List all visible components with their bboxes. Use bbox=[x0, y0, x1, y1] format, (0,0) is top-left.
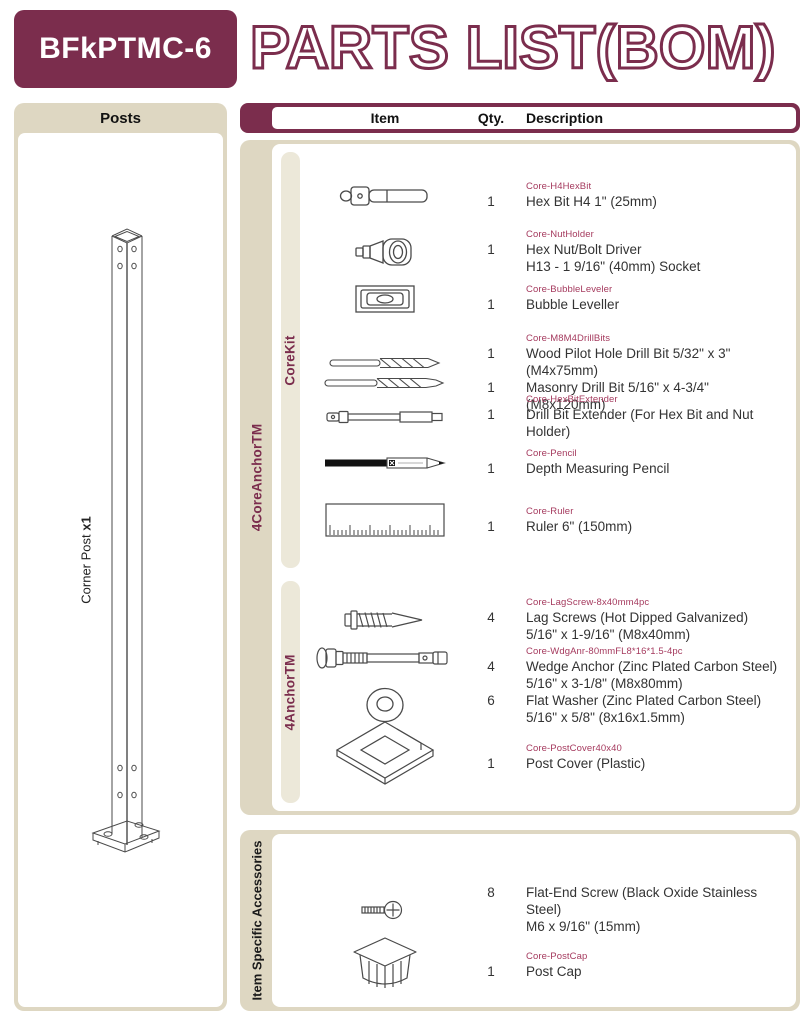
part-number: Core-WdgAnr-80mmFL8*16*1.5-4pc bbox=[526, 646, 786, 658]
parts-row: Core-HexBitExtender 1Drill Bit Extender … bbox=[310, 394, 786, 440]
description-line: Hex Bit H4 1" (25mm) bbox=[526, 193, 786, 210]
section-label-gutter: Item Specific Accessories bbox=[240, 830, 274, 1011]
column-header-item: Item bbox=[310, 110, 460, 126]
corner-post-name: Corner Post bbox=[79, 534, 94, 603]
item-content: Core-LagScrew-8x40mm4pc 4Lag Screws (Hot… bbox=[460, 597, 786, 643]
part-number: Core-PostCap bbox=[526, 951, 786, 963]
product-code-badge: BFkPTMC-6 bbox=[14, 10, 237, 88]
description-line: Wedge Anchor (Zinc Plated Carbon Steel) bbox=[526, 658, 786, 675]
qty-value: 1 bbox=[460, 193, 522, 210]
parts-list-page: BFkPTMC-6 PARTS LIST (BOM) Posts bbox=[0, 0, 812, 1024]
description-line: H13 - 1 9/16" (40mm) Socket bbox=[526, 258, 786, 275]
masonry-drill-bit-icon bbox=[324, 376, 446, 390]
item-entries: 1Hex Bit H4 1" (25mm) bbox=[460, 193, 786, 210]
qty-value: 8 bbox=[460, 884, 522, 935]
part-number: Core-H4HexBit bbox=[526, 181, 786, 193]
subsection-label-corekit: CoreKit bbox=[283, 335, 298, 385]
item-entries: 1Ruler 6" (150mm) bbox=[460, 518, 786, 535]
description-line: 5/16" x 3-1/8" (M8x80mm) bbox=[526, 675, 786, 692]
posts-panel-body: Corner Post x1 bbox=[18, 133, 223, 1007]
wedge-anchor-icon bbox=[316, 646, 454, 670]
item-content: Core-Pencil 1Depth Measuring Pencil bbox=[460, 448, 786, 477]
description-line: Depth Measuring Pencil bbox=[526, 460, 786, 477]
description-line: Lag Screws (Hot Dipped Galvanized) bbox=[526, 609, 786, 626]
qty-value: 1 bbox=[460, 296, 522, 313]
pencil-icon bbox=[324, 456, 446, 470]
qty-value: 1 bbox=[460, 460, 522, 477]
ruler-icon bbox=[325, 503, 445, 537]
item-illustration bbox=[310, 184, 460, 208]
description-line: Flat Washer (Zinc Plated Carbon Steel) bbox=[526, 692, 786, 709]
posts-panel-title: Posts bbox=[14, 103, 227, 133]
qty-value: 1 bbox=[460, 518, 522, 535]
item-illustration bbox=[310, 720, 460, 794]
item-content: Core-PostCap 1Post Cap bbox=[460, 951, 786, 980]
qty-value: 1 bbox=[460, 963, 522, 980]
part-number: Core-Ruler bbox=[526, 506, 786, 518]
posts-panel: Posts bbox=[14, 103, 227, 1011]
section-content-4coreanchor: CoreKit 4AnchorTM Core-H4HexBit 1Hex Bit… bbox=[272, 144, 796, 811]
item-illustration bbox=[310, 456, 460, 470]
item-illustration bbox=[310, 936, 460, 994]
item-entries: 4Lag Screws (Hot Dipped Galvanized)5/16"… bbox=[460, 609, 786, 643]
part-number: Core-LagScrew-8x40mm4pc bbox=[526, 597, 786, 609]
item-entries: 1Drill Bit Extender (For Hex Bit and Nut… bbox=[460, 406, 786, 440]
lag-screw-icon bbox=[344, 607, 426, 633]
item-content: Core-H4HexBit 1Hex Bit H4 1" (25mm) bbox=[460, 181, 786, 210]
page-title-main: PARTS LIST bbox=[250, 18, 596, 78]
parts-row: Core-LagScrew-8x40mm4pc 4Lag Screws (Hot… bbox=[310, 597, 786, 643]
item-content: Core-HexBitExtender 1Drill Bit Extender … bbox=[460, 394, 786, 440]
subsection-strip-corekit: CoreKit bbox=[281, 152, 300, 568]
item-entries: 1Depth Measuring Pencil bbox=[460, 460, 786, 477]
part-number: Core-Pencil bbox=[526, 448, 786, 460]
item-illustration bbox=[310, 285, 460, 313]
parts-row: Core-PostCover40x40 1Post Cover (Plastic… bbox=[310, 720, 786, 794]
drill-bit-extender-icon bbox=[326, 409, 444, 425]
description-line: Flat-End Screw (Black Oxide Stainless St… bbox=[526, 884, 786, 918]
qty-value: 1 bbox=[460, 345, 522, 379]
qty-value: 1 bbox=[460, 755, 522, 772]
corner-post-drawing bbox=[18, 133, 223, 1007]
parts-row: 8Flat-End Screw (Black Oxide Stainless S… bbox=[310, 884, 786, 935]
corner-post-qty: x1 bbox=[79, 516, 94, 530]
parts-row: Core-Ruler 1Ruler 6" (150mm) bbox=[310, 503, 786, 537]
product-code: BFkPTMC-6 bbox=[39, 32, 212, 66]
item-entries: 1Post Cover (Plastic) bbox=[460, 755, 786, 772]
section-label-4coreanchor: 4CoreAnchorTM bbox=[250, 424, 265, 532]
parts-row: Core-WdgAnr-80mmFL8*16*1.5-4pc 4Wedge An… bbox=[310, 646, 786, 726]
page-title-suffix: (BOM) bbox=[596, 18, 776, 78]
section-label-accessories: Item Specific Accessories bbox=[250, 841, 265, 1001]
item-entries: 4Wedge Anchor (Zinc Plated Carbon Steel)… bbox=[460, 658, 786, 726]
item-illustration bbox=[310, 237, 460, 267]
item-illustration bbox=[310, 899, 460, 921]
section-label-gutter: 4CoreAnchorTM bbox=[240, 140, 274, 815]
qty-value: 4 bbox=[460, 609, 522, 643]
description-line: Ruler 6" (150mm) bbox=[526, 518, 786, 535]
corner-post-label: Corner Post x1 bbox=[79, 516, 94, 603]
wood-drill-bit-icon bbox=[329, 356, 441, 370]
part-number: Core-NutHolder bbox=[526, 229, 786, 241]
nut-driver-icon bbox=[355, 237, 415, 267]
subsection-label-4anchor: 4AnchorTM bbox=[283, 654, 298, 730]
item-entries: 1Post Cap bbox=[460, 963, 786, 980]
parts-row: Core-Pencil 1Depth Measuring Pencil bbox=[310, 448, 786, 477]
item-illustration bbox=[310, 356, 460, 390]
column-header-qty: Qty. bbox=[460, 110, 522, 126]
description-line: Drill Bit Extender (For Hex Bit and Nut … bbox=[526, 406, 786, 440]
item-illustration bbox=[310, 409, 460, 425]
description-line: Wood Pilot Hole Drill Bit 5/32" x 3" (M4… bbox=[526, 345, 786, 379]
page-title: PARTS LIST (BOM) bbox=[250, 8, 802, 88]
table-header-bar: Item Qty. Description bbox=[240, 103, 800, 133]
parts-row: Core-H4HexBit 1Hex Bit H4 1" (25mm) bbox=[310, 181, 786, 210]
description-line: Hex Nut/Bolt Driver bbox=[526, 241, 786, 258]
item-content: Core-NutHolder 1Hex Nut/Bolt DriverH13 -… bbox=[460, 229, 786, 275]
item-entries: 8Flat-End Screw (Black Oxide Stainless S… bbox=[460, 884, 786, 935]
table-header-inner: Item Qty. Description bbox=[272, 107, 796, 129]
item-content: Core-WdgAnr-80mmFL8*16*1.5-4pc 4Wedge An… bbox=[460, 646, 786, 726]
part-number: Core-M8M4DrillBits bbox=[526, 333, 786, 345]
item-content: Core-BubbleLeveler 1Bubble Leveller bbox=[460, 284, 786, 313]
qty-value: 1 bbox=[460, 241, 522, 275]
parts-row: Core-BubbleLeveler 1Bubble Leveller bbox=[310, 284, 786, 313]
parts-row: Core-PostCap 1Post Cap bbox=[310, 936, 786, 994]
part-number: Core-PostCover40x40 bbox=[526, 743, 786, 755]
item-content: Core-PostCover40x40 1Post Cover (Plastic… bbox=[460, 743, 786, 772]
item-entries: 1Hex Nut/Bolt DriverH13 - 1 9/16" (40mm)… bbox=[460, 241, 786, 275]
item-illustration bbox=[310, 607, 460, 633]
description-line: M6 x 9/16" (15mm) bbox=[526, 918, 786, 935]
column-header-description: Description bbox=[522, 110, 603, 126]
item-content: 8Flat-End Screw (Black Oxide Stainless S… bbox=[460, 884, 786, 935]
section-content-accessories: 8Flat-End Screw (Black Oxide Stainless S… bbox=[272, 834, 796, 1007]
description-line: Post Cap bbox=[526, 963, 786, 980]
item-illustration bbox=[310, 503, 460, 537]
description-line: Post Cover (Plastic) bbox=[526, 755, 786, 772]
flat-end-screw-icon bbox=[360, 899, 410, 921]
bubble-level-icon bbox=[355, 285, 415, 313]
post-cap-icon bbox=[352, 936, 418, 994]
parts-row: Core-NutHolder 1Hex Nut/Bolt DriverH13 -… bbox=[310, 229, 786, 275]
post-cover-icon bbox=[335, 720, 435, 794]
hex-bit-icon bbox=[339, 184, 431, 208]
part-number: Core-BubbleLeveler bbox=[526, 284, 786, 296]
section-panel-4coreanchor: 4CoreAnchorTM CoreKit 4AnchorTM Core-H4H… bbox=[240, 140, 800, 815]
item-illustration bbox=[310, 646, 460, 726]
description-line: 5/16" x 1-9/16" (M8x40mm) bbox=[526, 626, 786, 643]
description-line: Bubble Leveller bbox=[526, 296, 786, 313]
item-entries: 1Bubble Leveller bbox=[460, 296, 786, 313]
qty-value: 4 bbox=[460, 658, 522, 692]
subsection-strip-4anchor: 4AnchorTM bbox=[281, 581, 300, 803]
item-content: Core-Ruler 1Ruler 6" (150mm) bbox=[460, 506, 786, 535]
section-panel-accessories: Item Specific Accessories 8Flat-End Scre… bbox=[240, 830, 800, 1011]
qty-value: 1 bbox=[460, 406, 522, 440]
part-number: Core-HexBitExtender bbox=[526, 394, 786, 406]
